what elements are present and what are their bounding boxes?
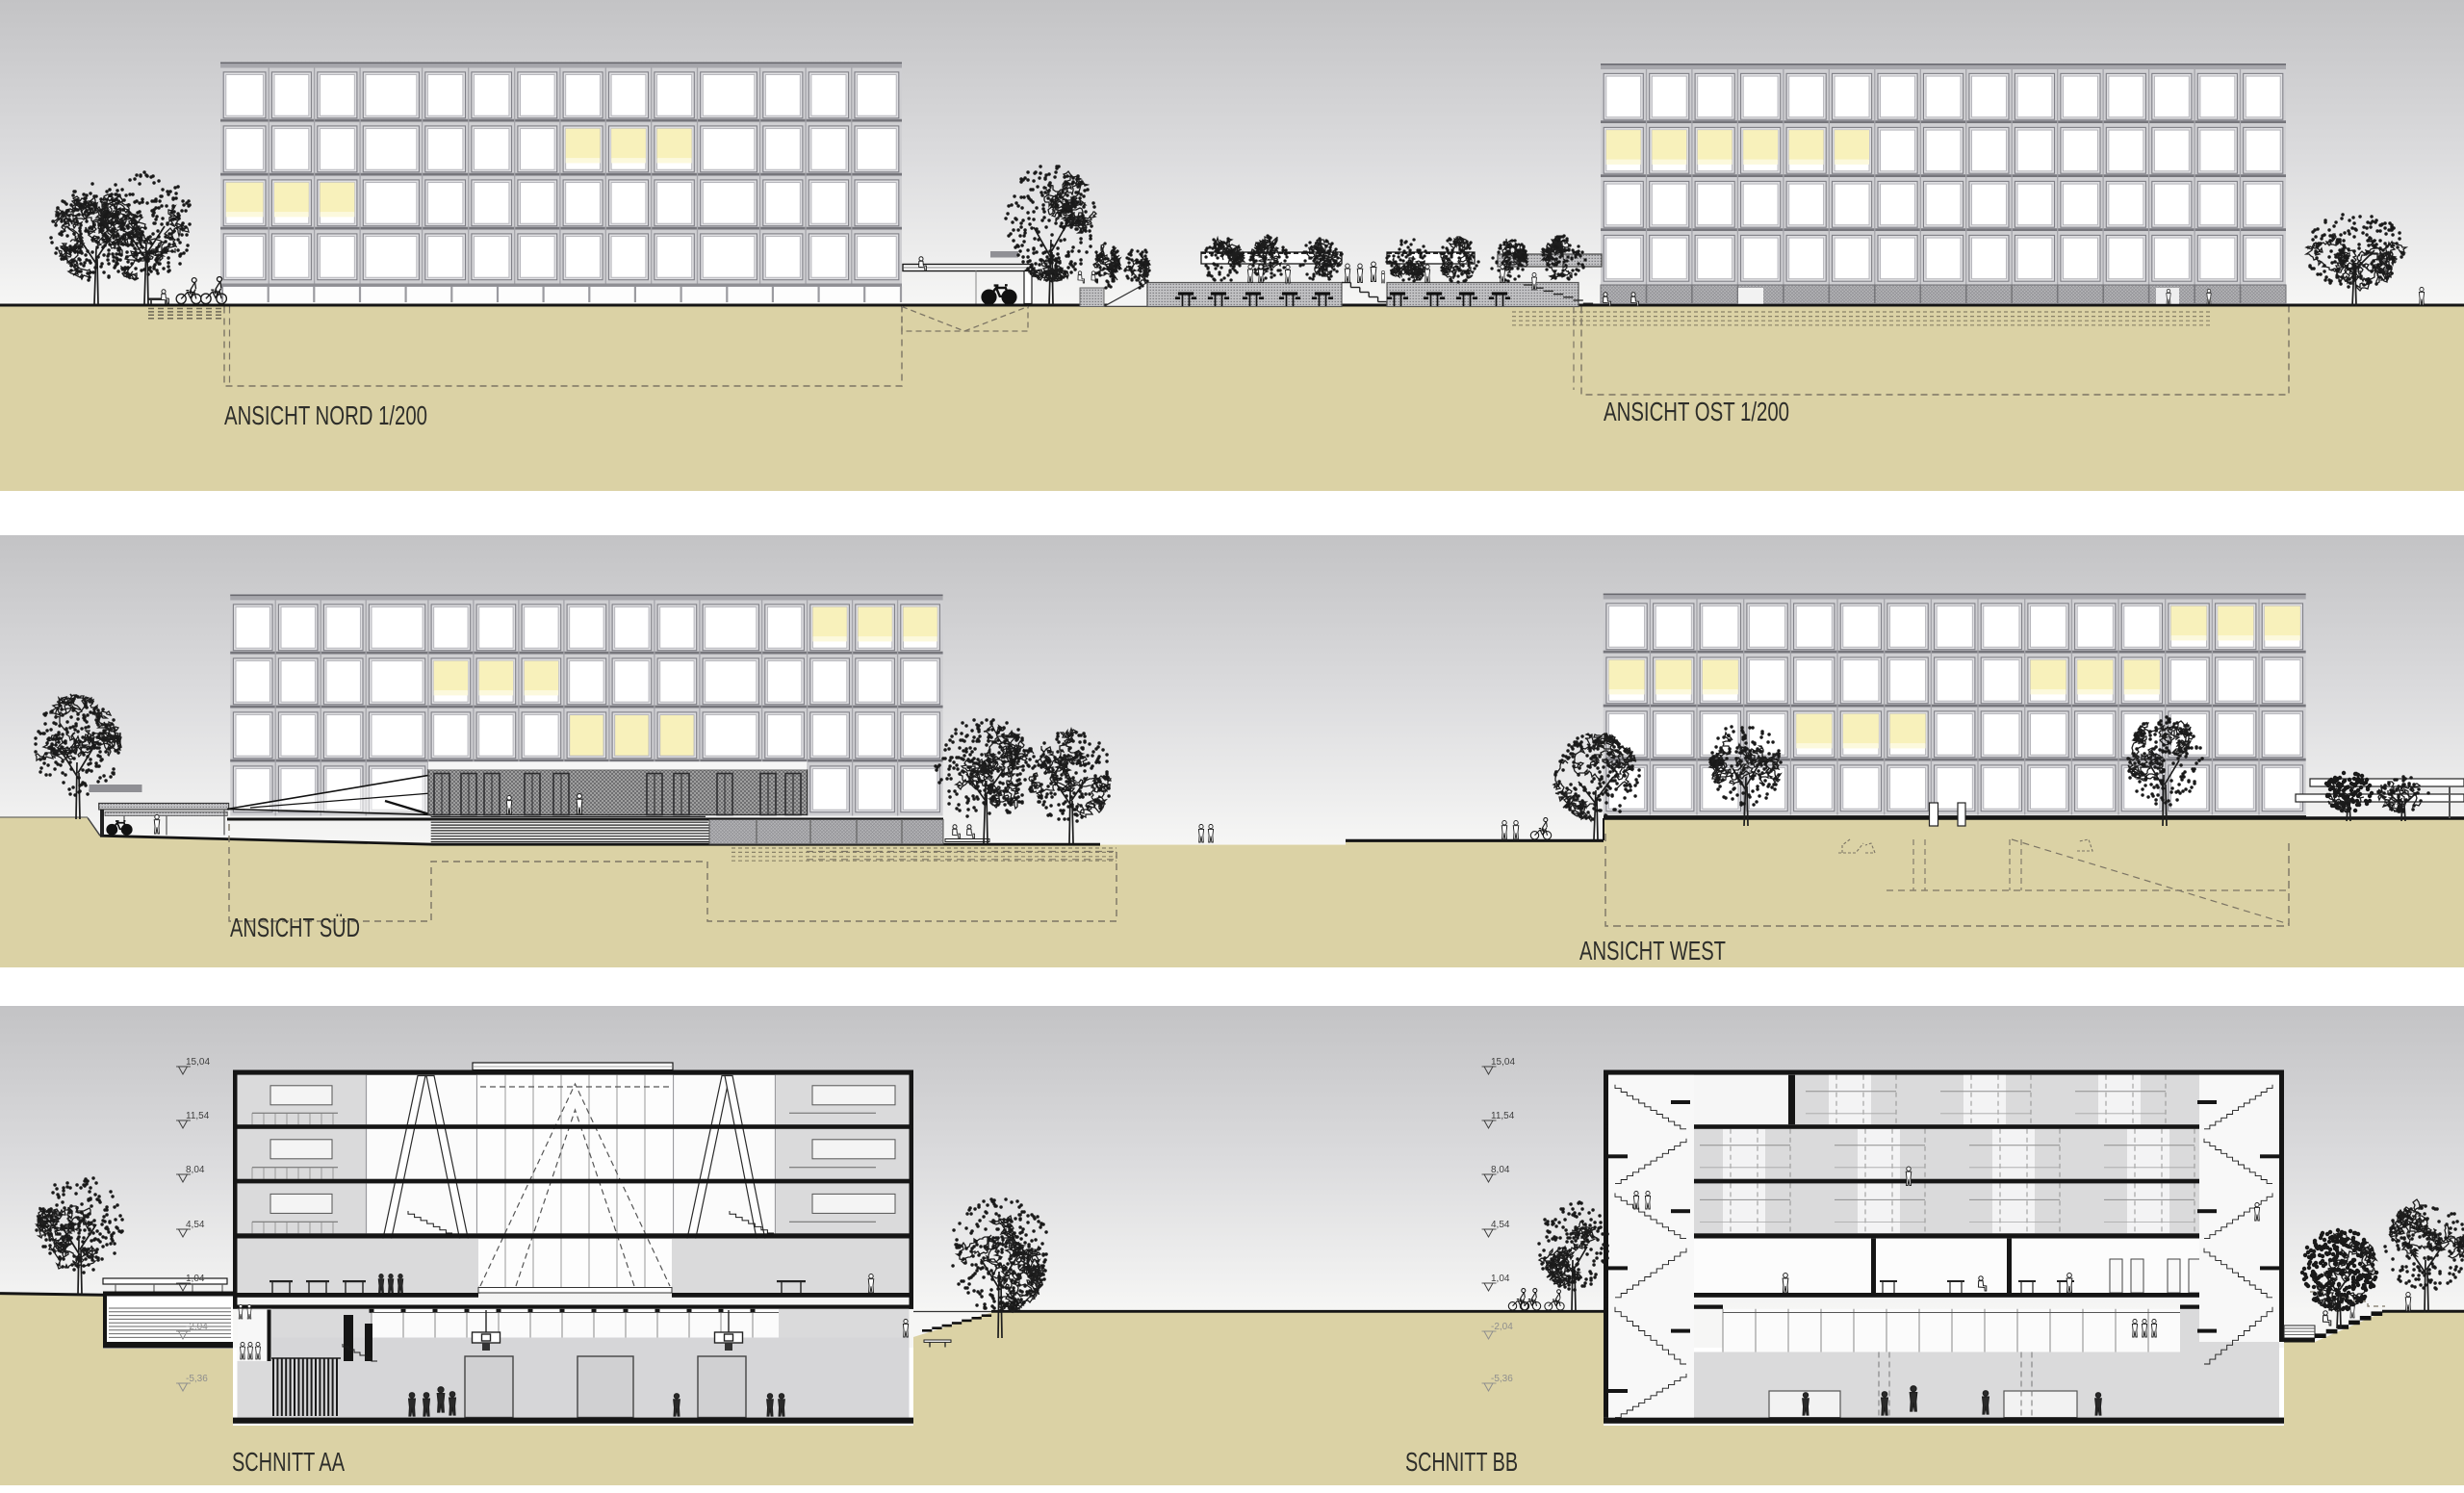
svg-text:ANSICHT OST 1/200: ANSICHT OST 1/200 (1604, 397, 1789, 426)
svg-text:11,54: 11,54 (1491, 1111, 1515, 1121)
svg-text:8,04: 8,04 (186, 1165, 205, 1175)
svg-text:8,04: 8,04 (1491, 1165, 1510, 1175)
svg-text:ANSICHT WEST: ANSICHT WEST (1579, 936, 1726, 965)
svg-text:ANSICHT SÜD: ANSICHT SÜD (230, 913, 360, 942)
svg-text:SCHNITT AA: SCHNITT AA (232, 1447, 345, 1477)
svg-text:-2,04: -2,04 (186, 1322, 208, 1332)
svg-text:4,54: 4,54 (186, 1220, 205, 1230)
svg-text:1,04: 1,04 (1491, 1274, 1510, 1284)
svg-text:15,04: 15,04 (186, 1057, 210, 1068)
svg-text:1,04: 1,04 (186, 1274, 205, 1284)
svg-text:-5,36: -5,36 (186, 1374, 208, 1384)
svg-text:SCHNITT BB: SCHNITT BB (1405, 1447, 1518, 1477)
svg-text:15,04: 15,04 (1491, 1057, 1515, 1068)
svg-text:-5,36: -5,36 (1491, 1374, 1513, 1384)
svg-text:11,54: 11,54 (186, 1111, 210, 1121)
svg-text:-2,04: -2,04 (1491, 1322, 1513, 1332)
svg-text:4,54: 4,54 (1491, 1220, 1510, 1230)
svg-text:ANSICHT NORD 1/200: ANSICHT NORD 1/200 (224, 400, 427, 430)
